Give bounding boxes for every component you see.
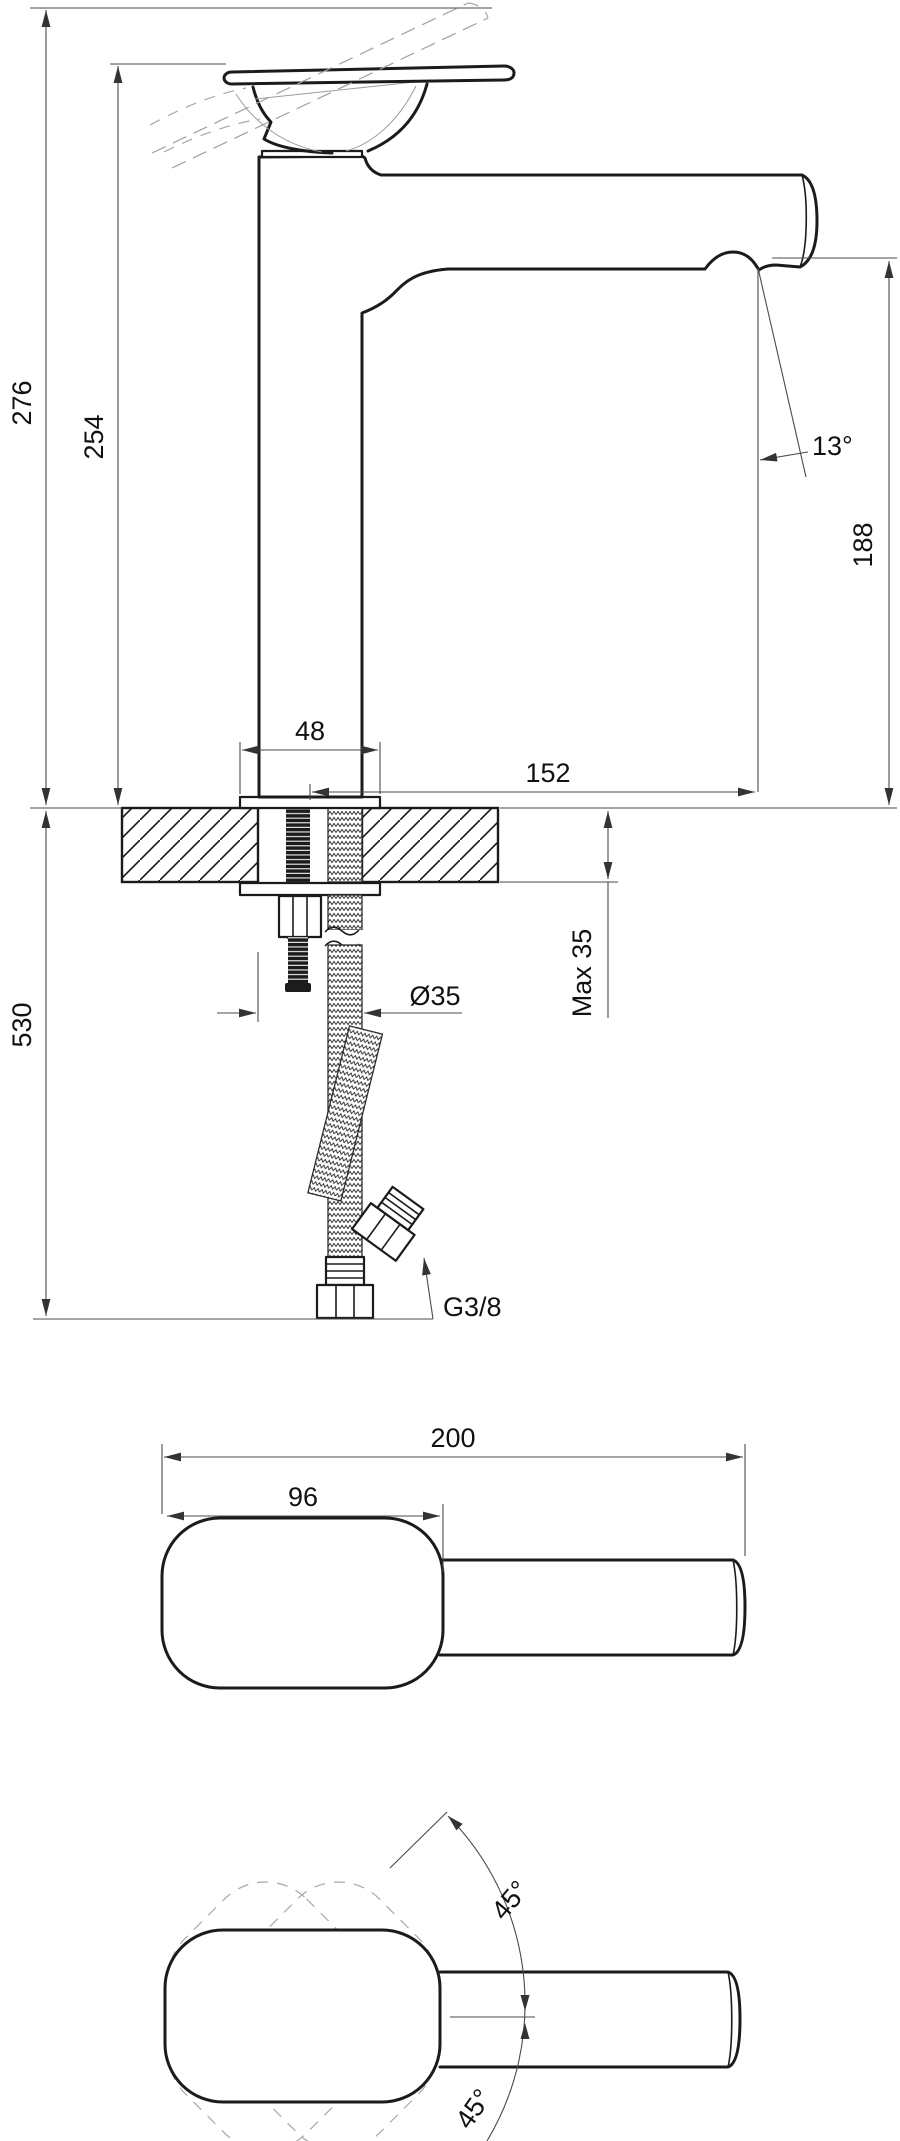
hose-hex-nut (317, 1285, 373, 1318)
dim-overall-height-label: 276 (7, 380, 37, 425)
swivel-axis-line-upper (390, 1812, 447, 1868)
side-view: 276 254 530 48 152 (7, 3, 897, 1322)
supply-hose-upper (328, 895, 362, 930)
dim-overall-height: 276 (7, 8, 492, 808)
dim-swivel-upper-label: 45° (485, 1875, 534, 1926)
faucet-body-and-spout (259, 156, 817, 797)
branch-hose-end (352, 1182, 430, 1261)
raised-lever-skirt (150, 88, 246, 125)
dim-hose-length-label: 530 (7, 1002, 37, 1047)
top-view: 200 96 (162, 1423, 745, 1688)
dim-hole-diameter-label: Ø35 (409, 981, 460, 1011)
stud-end-cap (285, 983, 311, 992)
dim-overall-length-label: 200 (430, 1423, 475, 1453)
swivel-view: 45° 45° (144, 1812, 740, 2141)
dim-outlet-height: 188 (500, 258, 897, 808)
technical-drawing-page: 276 254 530 48 152 (0, 0, 900, 2141)
under-counter-mounting (240, 808, 430, 1318)
dim-base-width-label: 48 (295, 716, 325, 746)
branch-braid (308, 1026, 383, 1201)
raised-lever-dashed-edge (172, 18, 488, 168)
dim-body-length-label: 96 (288, 1482, 318, 1512)
mounting-flange (240, 883, 380, 895)
handle-skirt-right (368, 84, 427, 151)
dim-spout-reach-label: 152 (525, 758, 570, 788)
swivel-view-spout (440, 1972, 740, 2067)
dim-body-height: 254 (79, 64, 226, 805)
swivel-view-body (165, 1930, 440, 2102)
handle-ghost-curve (346, 86, 416, 151)
dim-outlet-angle-label: 13° (812, 431, 853, 461)
faucet-technical-drawing: 276 254 530 48 152 (0, 0, 900, 2141)
dim-swivel-lower-label: 45° (450, 2084, 498, 2135)
supply-hose-branch (308, 1026, 383, 1201)
dim-deck-thickness: Max 35 (500, 811, 618, 1018)
leader-hose-thread-label: G3/8 (443, 1292, 502, 1322)
top-view-body (162, 1518, 443, 1688)
countertop-right (362, 808, 498, 882)
faucet-side-outline (150, 3, 817, 808)
mounting-nut (279, 896, 321, 937)
angle-reference-line (758, 268, 806, 477)
leader-hose-thread: G3/8 (424, 1258, 502, 1322)
dim-body-height-label: 254 (79, 414, 109, 459)
dim-spout-reach: 152 (310, 268, 758, 800)
countertop-left (122, 808, 258, 882)
top-view-spout (440, 1560, 745, 1655)
supply-hose-in-hole (328, 808, 362, 882)
threaded-stud-lower (288, 937, 308, 985)
leader-line (424, 1258, 433, 1319)
dim-deck-thickness-label: Max 35 (567, 929, 597, 1018)
dim-outlet-angle: 13° (758, 268, 853, 477)
dim-outlet-height-label: 188 (848, 522, 878, 567)
threaded-stud-in-hole (286, 808, 310, 882)
raised-lever-skirt (164, 119, 260, 152)
arc-arrowhead (445, 1813, 463, 1831)
raised-lever-tip (468, 3, 488, 18)
